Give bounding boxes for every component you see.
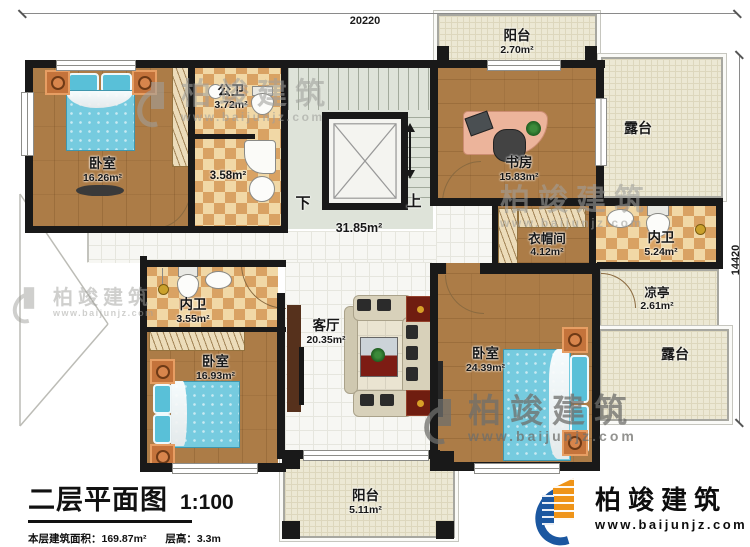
wardrobe-hatch (149, 331, 245, 351)
arrow-up-icon (405, 118, 415, 132)
cushion (357, 299, 371, 311)
plant (526, 121, 541, 136)
brand-name: 柏竣建筑 (595, 480, 747, 517)
window (474, 463, 560, 474)
room-name: 客厅 (285, 318, 367, 334)
room-area: 5.24m² (628, 246, 694, 258)
tv (299, 347, 304, 405)
hall-open-edge (87, 232, 89, 262)
door-knob (695, 224, 706, 235)
sliding-door (303, 450, 429, 461)
balcony-post (436, 521, 454, 539)
watermark-logo-icon (13, 287, 40, 321)
balcony-post (585, 46, 597, 61)
watermark-logo-icon (425, 399, 459, 441)
cushion (406, 346, 418, 360)
window (56, 60, 136, 71)
plan-scale: 1:100 (180, 491, 234, 515)
window (21, 92, 34, 156)
brand-logo: 柏竣建筑 www.baijunjz.com (536, 478, 747, 534)
room-area: 2.70m² (470, 44, 564, 56)
cushion (360, 394, 374, 406)
watermark-logo-icon (138, 82, 172, 124)
area-value: 169.87m² (102, 533, 147, 545)
title-underline (28, 520, 192, 523)
watermark-url: www.baijunjz.com (468, 427, 637, 445)
dimension-value-right: 14420 (730, 237, 742, 283)
dimension-line-top (22, 13, 738, 14)
area-label: 本层建筑面积： (28, 533, 102, 545)
room-label-pavilion: 凉亭 2.61m² (622, 286, 692, 312)
height-label: 层高： (165, 533, 197, 545)
plant (371, 348, 385, 362)
balcony-post (282, 521, 300, 539)
room-label-terrace-top: 露台 (605, 120, 671, 136)
wall (430, 60, 438, 206)
height-value: 3.3m (197, 533, 221, 545)
watermark-name: 柏竣建筑 (53, 288, 155, 308)
brand-logo-icon (536, 478, 586, 534)
room-label-bath-small: 3.58m² (197, 170, 259, 183)
watermark-name: 柏竣建筑 (468, 394, 637, 427)
room-name: 卧室 (168, 354, 263, 370)
sink (205, 271, 232, 289)
side-table (562, 327, 588, 353)
room-area: 4.12m² (512, 246, 582, 258)
lamp-cord (162, 268, 163, 284)
room-name: 露台 (605, 120, 671, 136)
cushion (406, 367, 418, 381)
door-opening (446, 263, 480, 274)
room-area: 2.61m² (622, 300, 692, 312)
room-label-study: 书房 15.83m² (475, 155, 563, 183)
cushion (377, 299, 391, 311)
wall (140, 260, 286, 267)
plan-stats: 本层建筑面积：169.87m² 层高：3.3m (28, 531, 234, 546)
room-label-bedroom-bottomright: 卧室 24.39m² (438, 346, 533, 374)
room-area: 20.35m² (285, 334, 367, 346)
cushion (380, 394, 394, 406)
room-label-balcony-bottom: 阳台 5.11m² (318, 488, 413, 516)
room-label-ensuite-right: 内卫 5.24m² (628, 230, 694, 258)
title-block: 二层平面图 1:100 本层建筑面积：169.87m² 层高：3.3m (28, 478, 234, 546)
wall (492, 203, 498, 265)
room-label-terrace-right: 露台 (642, 346, 708, 362)
room-name: 内卫 (160, 297, 226, 313)
stair-label-down: 下 (291, 195, 315, 212)
room-area: 3.55m² (160, 313, 226, 325)
room-area: 31.85m² (320, 221, 398, 235)
bed (151, 381, 238, 446)
arrow-down-icon (405, 170, 415, 184)
watermark-url: www.baijunjz.com (53, 308, 155, 320)
room-name: 凉亭 (622, 286, 692, 300)
wall (597, 262, 723, 269)
wall (140, 327, 286, 332)
room-name: 内卫 (628, 230, 694, 246)
room-label-living: 客厅 20.35m² (285, 318, 367, 346)
plan-title: 二层平面图 (28, 478, 168, 517)
room-label-hall: 31.85m² (320, 221, 398, 235)
stair-label-up: 上 (402, 193, 426, 210)
room-name: 露台 (642, 346, 708, 362)
watermark-url: www.baijunjz.com (500, 216, 652, 232)
room-area: 5.11m² (318, 504, 413, 516)
watermark-url: www.baijunjz.com (181, 110, 333, 126)
room-area: 15.83m² (475, 171, 563, 183)
room-name: 阳台 (318, 488, 413, 504)
watermark: 柏竣建筑 www.baijunjz.com (425, 394, 637, 445)
wall (277, 293, 285, 459)
stair-up-text: 上 (402, 193, 426, 210)
room-name: 卧室 (55, 156, 150, 172)
wall (25, 226, 287, 233)
room-label-bedroom-bottomleft: 卧室 16.93m² (168, 354, 263, 382)
room-name: 衣帽间 (512, 232, 582, 246)
watermark: 柏竣建筑 www.baijunjz.com (500, 186, 652, 232)
room-label-ensuite-left: 内卫 3.55m² (160, 297, 226, 325)
toilet (177, 266, 197, 296)
stair-direction-arrow (409, 126, 411, 170)
side-table (45, 70, 70, 95)
watermark-name: 柏竣建筑 (181, 80, 333, 110)
elevator-shaft (322, 112, 408, 210)
balcony-door (487, 60, 561, 71)
room-name: 书房 (475, 155, 563, 171)
floor-plan-canvas: 卧室 16.26m² 公卫 3.72m² 3.58m² 书房 15.83m² 阳… (0, 0, 750, 547)
room-name: 阳台 (470, 28, 564, 44)
room-area: 16.93m² (168, 370, 263, 382)
stair-down-text: 下 (291, 195, 315, 212)
room-name: 卧室 (438, 346, 533, 362)
room-label-balcony-top: 阳台 2.70m² (470, 28, 564, 56)
cushion (406, 325, 418, 339)
balcony-post (437, 46, 449, 61)
room-area: 3.58m² (197, 170, 259, 183)
room-area: 16.26m² (55, 172, 150, 184)
dresser (76, 185, 124, 196)
wall (193, 134, 255, 139)
bed (66, 71, 133, 149)
window (172, 463, 258, 474)
room-label-cloakroom: 衣帽间 4.12m² (512, 232, 582, 258)
brand-url: www.baijunjz.com (595, 517, 747, 532)
dimension-value-top: 20220 (340, 15, 390, 27)
wall (716, 198, 723, 269)
lamp (158, 284, 169, 295)
room-area: 24.39m² (438, 362, 533, 374)
watermark: 柏竣建筑 www.baijunjz.com (10, 283, 155, 325)
watermark-name: 柏竣建筑 (500, 186, 652, 216)
watermark: 柏竣建筑 www.baijunjz.com (138, 80, 333, 126)
room-label-bedroom-topleft: 卧室 16.26m² (55, 156, 150, 184)
room-hall-connector (436, 200, 494, 266)
